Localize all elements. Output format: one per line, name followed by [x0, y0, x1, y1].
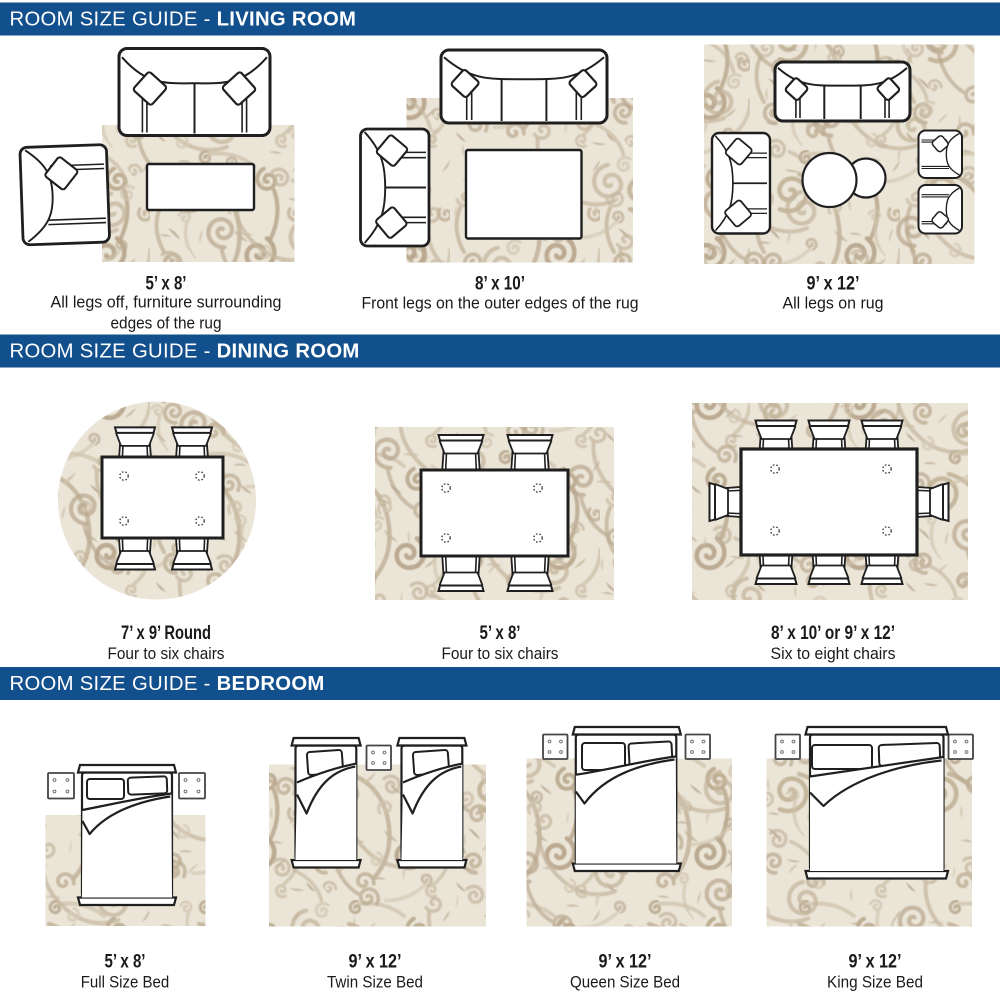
svg-text:5’ x 8’: 5’ x 8’ — [480, 622, 521, 644]
svg-text:All legs off, furniture surrou: All legs off, furniture surrounding — [51, 293, 282, 312]
svg-text:ROOM SIZE GUIDE - DINING ROOM: ROOM SIZE GUIDE - DINING ROOM — [10, 341, 360, 363]
svg-text:ROOM SIZE GUIDE - LIVING ROOM: ROOM SIZE GUIDE - LIVING ROOM — [10, 9, 357, 31]
svg-text:9’ x 12’: 9’ x 12’ — [599, 951, 652, 973]
svg-text:9’ x 12’: 9’ x 12’ — [349, 951, 402, 973]
svg-text:9’ x 12’: 9’ x 12’ — [849, 951, 902, 973]
svg-text:All legs on rug: All legs on rug — [783, 294, 884, 313]
svg-text:edges of the rug: edges of the rug — [111, 314, 222, 333]
svg-text:Four to six chairs: Four to six chairs — [442, 644, 559, 663]
svg-text:Queen Size Bed: Queen Size Bed — [570, 973, 680, 992]
svg-text:Four to six chairs: Four to six chairs — [108, 644, 225, 663]
svg-text:ROOM SIZE GUIDE - BEDROOM: ROOM SIZE GUIDE - BEDROOM — [10, 673, 325, 695]
svg-text:Front legs on the outer edges: Front legs on the outer edges of the rug — [362, 294, 639, 313]
svg-text:Full Size Bed: Full Size Bed — [81, 973, 170, 992]
svg-text:Twin Size Bed: Twin Size Bed — [327, 973, 423, 992]
svg-text:5’ x 8’: 5’ x 8’ — [105, 951, 146, 973]
svg-text:Six to eight chairs: Six to eight chairs — [771, 644, 896, 663]
svg-text:King Size Bed: King Size Bed — [827, 973, 923, 992]
svg-text:7’ x 9’ Round: 7’ x 9’ Round — [121, 622, 211, 644]
svg-text:8’ x 10’ or 9’ x 12’: 8’ x 10’ or 9’ x 12’ — [771, 622, 895, 644]
svg-text:8’ x 10’: 8’ x 10’ — [475, 273, 525, 295]
svg-text:5’ x 8’: 5’ x 8’ — [146, 273, 187, 295]
svg-text:9’ x 12’: 9’ x 12’ — [807, 273, 860, 295]
